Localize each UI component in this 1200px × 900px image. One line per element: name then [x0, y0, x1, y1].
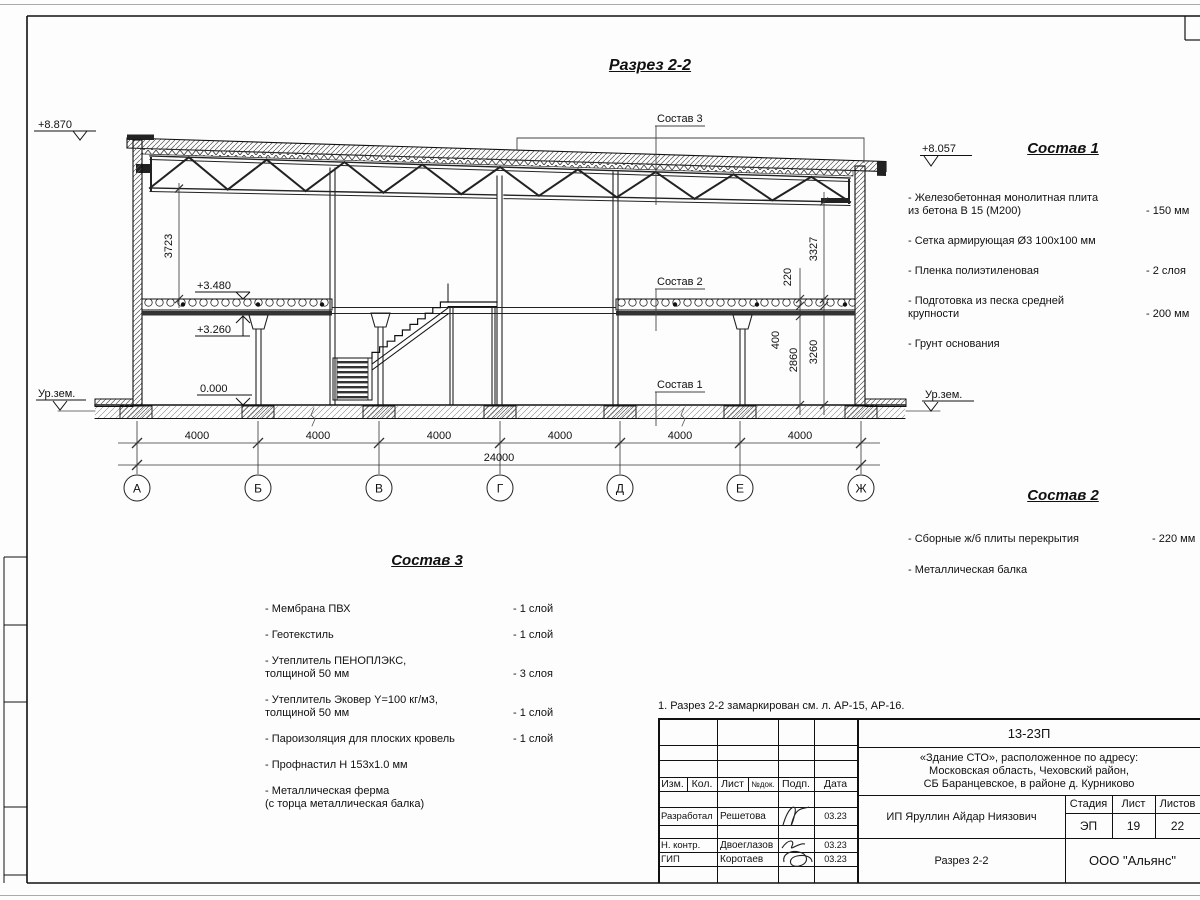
tb-doc-number: 13-23П [860, 722, 1198, 744]
drawing-sheet: +8.870 +8.057 +3.480 +3.260 0.000 Ур.зем… [0, 0, 1200, 900]
tb-sheets-label: Листов [1155, 795, 1200, 813]
tb-stage-label: Стадия [1065, 795, 1112, 813]
tb-drawing-name: Разрез 2-2 [860, 838, 1063, 883]
tb-date: 03.23 [814, 838, 857, 852]
tb-company: ООО "Альянс" [1065, 838, 1200, 883]
tb-name: Двоеглазов [720, 838, 778, 852]
tb-client: ИП Яруллин Айдар Ниязович [860, 795, 1063, 838]
signature [779, 836, 815, 870]
tb-stage-value: ЭП [1065, 813, 1112, 838]
tb-sheet-label: Лист [1112, 795, 1155, 813]
tb-date: 03.23 [814, 852, 857, 866]
signature [779, 795, 814, 837]
title-block: Изм. Кол. Лист №док. Подп. Дата Разработ… [0, 0, 1200, 900]
tb-sheet-value: 19 [1112, 813, 1155, 838]
tb-sheets-value: 22 [1155, 813, 1200, 838]
tb-role: Н. контр. [661, 838, 717, 852]
tb-name: Коротаев [720, 852, 778, 866]
tb-col-data: Дата [814, 777, 857, 791]
tb-project: «Здание СТО», расположенное по адресу: М… [860, 749, 1198, 793]
tb-col-izm: Изм. [658, 777, 687, 791]
tb-role: Разработал [661, 807, 717, 825]
tb-col-kol: Кол. [687, 777, 717, 791]
tb-col-list: Лист [717, 777, 748, 791]
tb-role: ГИП [661, 852, 717, 866]
tb-date: 03.23 [814, 807, 857, 825]
tb-name: Решетова [720, 807, 778, 825]
tb-col-ndok: №док. [748, 777, 778, 791]
tb-col-podp: Подп. [778, 777, 814, 791]
